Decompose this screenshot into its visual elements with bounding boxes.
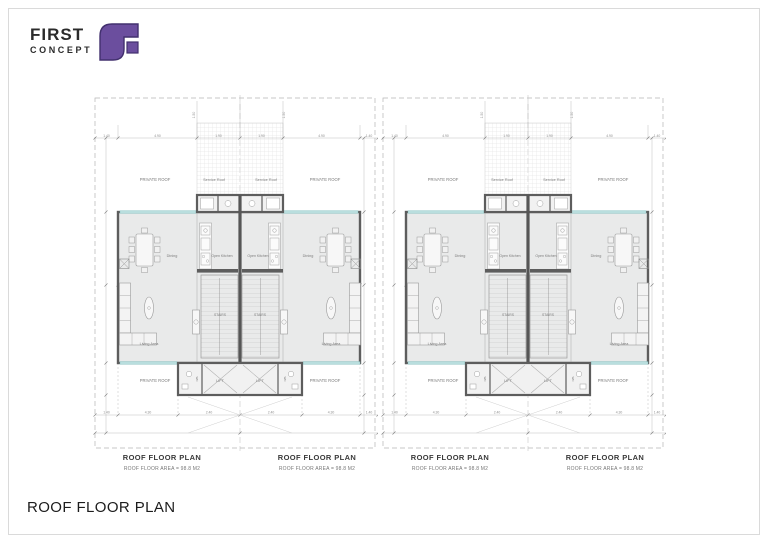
svg-text:4.30: 4.30 <box>145 411 152 415</box>
svg-text:4.90: 4.90 <box>154 134 161 138</box>
drawing-sheet: { "logo": {"line1": "FIRST", "line2": "C… <box>0 0 768 543</box>
svg-text:4.30: 4.30 <box>616 411 623 415</box>
dining-label: Dining <box>455 254 466 258</box>
svg-text:1.90: 1.90 <box>215 134 222 138</box>
plan-caption-title: ROOF FLOOR PLAN <box>380 453 520 462</box>
service-roof-label: Service Roof <box>491 178 514 182</box>
plan-caption-subtitle: ROOF FLOOR AREA = 98.8 M2 <box>92 466 232 472</box>
plan-caption-3: ROOF FLOOR PLAN ROOF FLOOR AREA = 98.8 M… <box>380 453 520 472</box>
dining-label: Dining <box>303 254 314 258</box>
plan-caption-subtitle: ROOF FLOOR AREA = 98.8 M2 <box>535 466 675 472</box>
svg-text:4.90: 4.90 <box>318 134 325 138</box>
floor-plan-svg: 1.40 4.90 1.90 1.90 4.90 1.40 1.40 4.30 … <box>380 95 666 451</box>
service-roof-label: Service Roof <box>543 178 566 182</box>
floor-plan-svg: 1.40 4.90 1.90 1.90 4.90 1.40 1.40 4.30 … <box>92 95 378 451</box>
svg-text:1.40: 1.40 <box>654 411 661 415</box>
open-kitchen-label: Open Kitchen <box>247 254 268 258</box>
plan-caption-subtitle: ROOF FLOOR AREA = 98.8 M2 <box>247 466 387 472</box>
private-roof-label: PRIVATE ROOF <box>428 177 459 182</box>
svg-text:1.90: 1.90 <box>503 134 510 138</box>
private-roof-label: PRIVATE ROOF <box>140 378 171 383</box>
living-area-label: Living Area <box>428 342 448 346</box>
svg-text:2.40: 2.40 <box>206 411 213 415</box>
svg-text:1.40: 1.40 <box>391 134 398 138</box>
svg-text:2.40: 2.40 <box>556 411 563 415</box>
plan-caption-4: ROOF FLOOR PLAN ROOF FLOOR AREA = 98.8 M… <box>535 453 675 472</box>
plan-caption-title: ROOF FLOOR PLAN <box>247 453 387 462</box>
private-roof-label: PRIVATE ROOF <box>140 177 171 182</box>
plan-caption-subtitle: ROOF FLOOR AREA = 98.8 M2 <box>380 466 520 472</box>
dining-label: Dining <box>167 254 178 258</box>
living-area-label: Living Area <box>610 342 630 346</box>
dining-label: Dining <box>591 254 602 258</box>
private-roof-label: PRIVATE ROOF <box>598 378 629 383</box>
logo-line1: FIRST <box>30 26 92 43</box>
living-area-label: Living Area <box>140 342 160 346</box>
svg-text:1.40: 1.40 <box>391 411 398 415</box>
svg-text:1.40: 1.40 <box>366 411 373 415</box>
wc-label: WC <box>571 377 575 383</box>
open-kitchen-label: Open Kitchen <box>211 254 232 258</box>
sheet-title: ROOF FLOOR PLAN <box>27 499 176 516</box>
svg-text:4.90: 4.90 <box>442 134 449 138</box>
svg-text:2.40: 2.40 <box>494 411 501 415</box>
svg-text:1.50: 1.50 <box>282 112 286 119</box>
logo-text: FIRST CONCEPT <box>30 26 92 55</box>
open-kitchen-label: Open Kitchen <box>535 254 556 258</box>
plan-caption-1: ROOF FLOOR PLAN ROOF FLOOR AREA = 98.8 M… <box>92 453 232 472</box>
logo-mark-icon <box>98 22 140 62</box>
plan-caption-title: ROOF FLOOR PLAN <box>535 453 675 462</box>
stairs-label: STAIRS <box>502 313 515 317</box>
private-roof-label: PRIVATE ROOF <box>598 177 629 182</box>
svg-text:1.50: 1.50 <box>570 112 574 119</box>
stairs-label: STAIRS <box>214 313 227 317</box>
svg-text:1.40: 1.40 <box>366 134 373 138</box>
floor-plan-2: 1.40 4.90 1.90 1.90 4.90 1.40 1.40 4.30 … <box>380 95 666 451</box>
wc-label: WC <box>195 377 199 383</box>
service-roof-label: Service Roof <box>255 178 278 182</box>
svg-text:1.40: 1.40 <box>654 134 661 138</box>
private-roof-label: PRIVATE ROOF <box>428 378 459 383</box>
living-area-label: Living Area <box>322 342 342 346</box>
svg-text:4.30: 4.30 <box>433 411 440 415</box>
lift-label: LIFT <box>256 379 264 383</box>
logo-line2: CONCEPT <box>30 46 92 55</box>
svg-text:4.90: 4.90 <box>606 134 613 138</box>
svg-text:4.30: 4.30 <box>328 411 335 415</box>
private-roof-label: PRIVATE ROOF <box>310 378 341 383</box>
floor-plan-1: 1.40 4.90 1.90 1.90 4.90 1.40 1.40 4.30 … <box>92 95 378 451</box>
svg-text:1.50: 1.50 <box>480 112 484 119</box>
lift-label: LIFT <box>216 379 224 383</box>
logo: FIRST CONCEPT <box>30 22 140 62</box>
svg-text:2.40: 2.40 <box>268 411 275 415</box>
stairs-label: STAIRS <box>542 313 555 317</box>
wc-label: WC <box>283 377 287 383</box>
svg-text:1.90: 1.90 <box>258 134 265 138</box>
svg-text:1.90: 1.90 <box>546 134 553 138</box>
service-roof-label: Service Roof <box>203 178 226 182</box>
plan-caption-title: ROOF FLOOR PLAN <box>92 453 232 462</box>
open-kitchen-label: Open Kitchen <box>499 254 520 258</box>
svg-text:1.50: 1.50 <box>192 112 196 119</box>
plan-caption-2: ROOF FLOOR PLAN ROOF FLOOR AREA = 98.8 M… <box>247 453 387 472</box>
stairs-label: STAIRS <box>254 313 267 317</box>
lift-label: LIFT <box>544 379 552 383</box>
svg-text:1.40: 1.40 <box>103 134 110 138</box>
lift-label: LIFT <box>504 379 512 383</box>
svg-text:1.40: 1.40 <box>103 411 110 415</box>
private-roof-label: PRIVATE ROOF <box>310 177 341 182</box>
wc-label: WC <box>483 377 487 383</box>
